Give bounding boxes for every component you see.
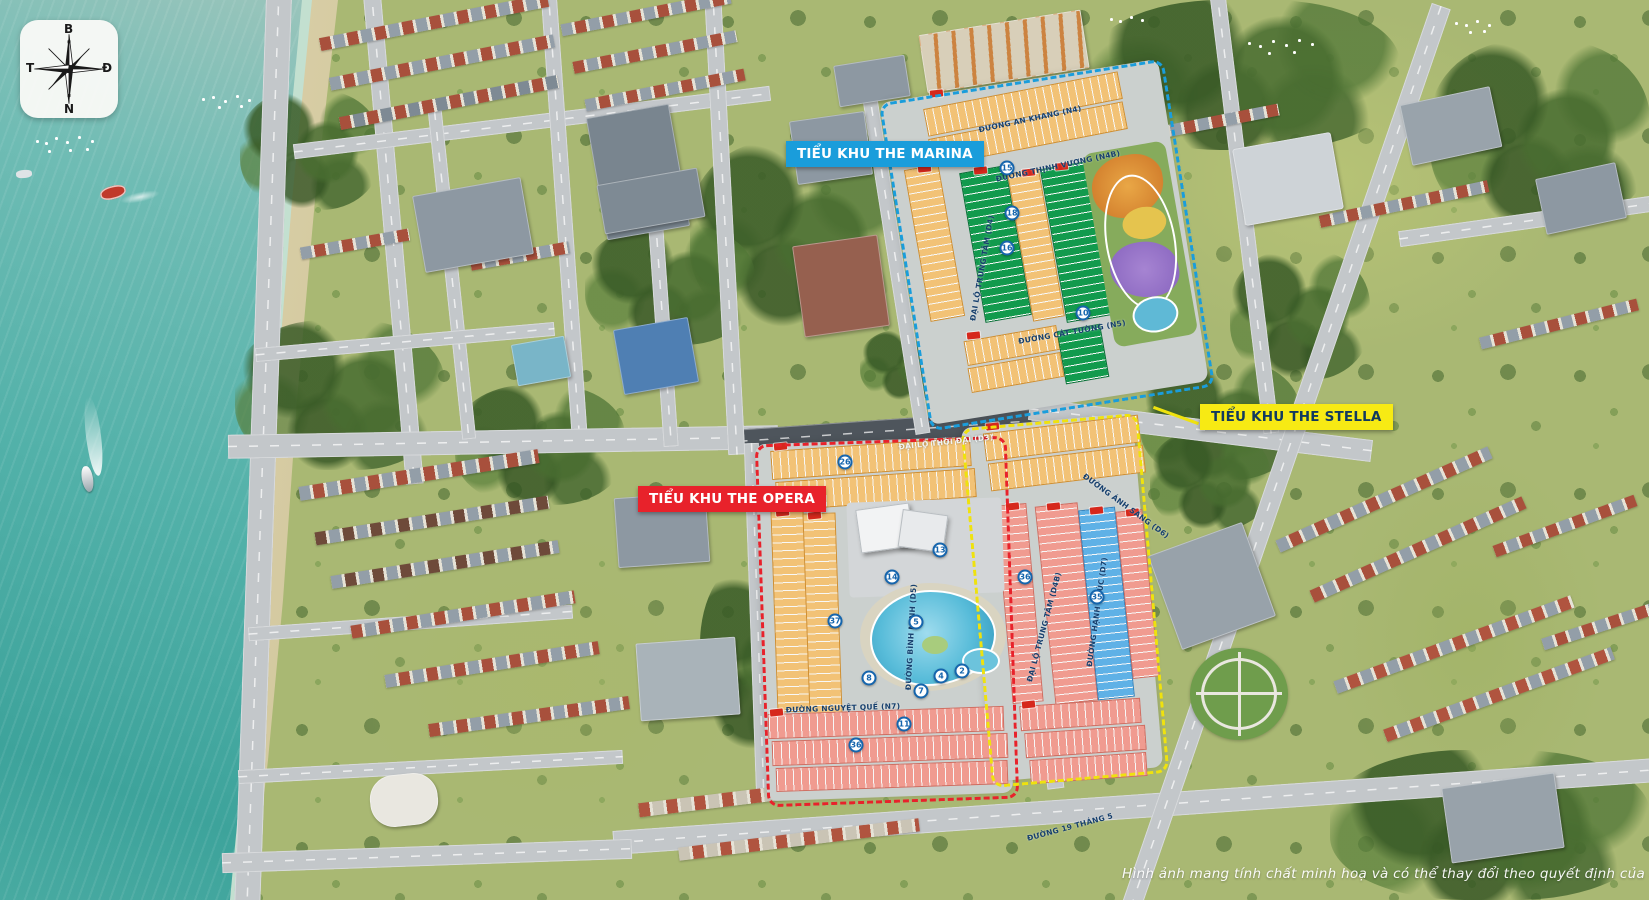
building: [635, 637, 740, 722]
lot-marker: 10: [1076, 306, 1091, 321]
lot-marker: 14: [885, 570, 900, 585]
bird-flock: [1248, 42, 1251, 45]
compass-east-label: Đ: [102, 61, 112, 75]
masterplan-map: TIỂU KHU THE MARINA TIỂU KHU THE OPERA T…: [0, 0, 1649, 900]
compass-rose: B N T Đ: [20, 20, 118, 118]
lot-marker: 26: [838, 455, 853, 470]
compass-west-label: T: [26, 61, 34, 75]
lot-marker: 16: [1000, 241, 1015, 256]
lot-marker: 36: [1018, 570, 1033, 585]
lot-marker: 5: [909, 615, 924, 630]
lot-marker: 11: [897, 717, 912, 732]
lot-marker: 13: [933, 543, 948, 558]
disclaimer-text: Hình ảnh mang tính chất minh hoạ và có t…: [1122, 866, 1649, 882]
zone-label-stella: TIỂU KHU THE STELLA: [1200, 404, 1393, 430]
lot-marker: 2: [955, 664, 970, 679]
lot-marker: 8: [862, 671, 877, 686]
building: [613, 317, 699, 395]
zone-label-marina: TIỂU KHU THE MARINA: [786, 141, 984, 167]
building: [1441, 772, 1564, 863]
lot-marker: 18: [1005, 206, 1020, 221]
stella-boundary: [961, 413, 1170, 788]
circular-park: [1190, 648, 1288, 740]
building: [792, 234, 890, 337]
zone-label-opera: TIỂU KHU THE OPERA: [638, 486, 826, 512]
bird-flock: [36, 140, 39, 143]
compass-north-label: B: [64, 22, 73, 36]
compass-south-label: N: [64, 102, 74, 116]
lot-marker: 7: [914, 684, 929, 699]
bird-flock: [202, 98, 205, 101]
lot-marker: 35: [1090, 590, 1105, 605]
lot-marker: 15: [1000, 161, 1015, 176]
bird-flock: [1110, 18, 1113, 21]
bird-flock: [1455, 22, 1458, 25]
park-cross-path: [1196, 692, 1282, 695]
lot-marker: 36: [849, 738, 864, 753]
lot-marker: 4: [934, 669, 949, 684]
lot-marker: 37: [828, 614, 843, 629]
